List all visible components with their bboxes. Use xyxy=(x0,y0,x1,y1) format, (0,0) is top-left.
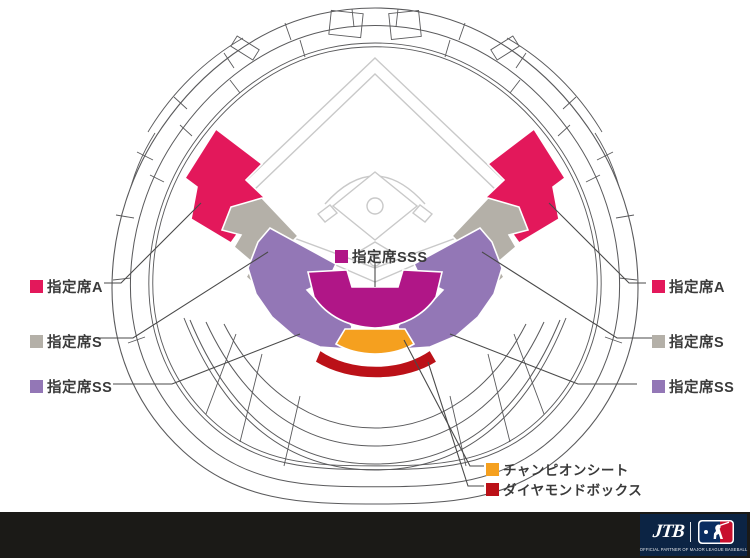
legend-label: 指定席SSS xyxy=(352,246,428,267)
logo-separator xyxy=(690,522,691,542)
legend-swatch-s xyxy=(30,335,43,348)
legend-label: 指定席S xyxy=(669,331,724,352)
legend-swatch-s xyxy=(652,335,665,348)
legend-label: 指定席SS xyxy=(47,376,112,397)
legend-item-shiteiseki-s-left: 指定席S xyxy=(30,331,102,352)
legend-label: 指定席S xyxy=(47,331,102,352)
legend-swatch-diamond xyxy=(486,483,499,496)
legend-item-shiteiseki-a-right: 指定席A xyxy=(652,276,725,297)
legend-swatch-ss xyxy=(652,380,665,393)
legend-item-champion-seat: チャンピオンシート xyxy=(486,459,629,479)
legend-label: 指定席A xyxy=(669,276,725,297)
legend-label: チャンピオンシート xyxy=(503,459,629,479)
legend-swatch-champion xyxy=(486,463,499,476)
mlb-logo xyxy=(698,520,734,544)
mlb-tagline: OFFICIAL PARTNER OF MAJOR LEAGUE BASEBAL… xyxy=(640,547,748,552)
legend-label: ダイヤモンドボックス xyxy=(503,479,642,499)
legend-label: 指定席A xyxy=(47,276,103,297)
legend-swatch-ss xyxy=(30,380,43,393)
legend-item-shiteiseki-sss: 指定席SSS xyxy=(335,246,428,267)
logo-row: JTB xyxy=(653,520,735,544)
legend-item-diamond-box: ダイヤモンドボックス xyxy=(486,479,642,499)
jtb-logo: JTB xyxy=(652,522,685,541)
legend-label: 指定席SS xyxy=(669,376,734,397)
footer-bar: JTB OFFICIAL PARTNER OF MAJOR LEAGUE BAS… xyxy=(0,512,750,558)
legend-swatch-sss xyxy=(335,250,348,263)
legend-swatch-a xyxy=(652,280,665,293)
section-champion-seat xyxy=(336,329,414,354)
legend-item-shiteiseki-s-right: 指定席S xyxy=(652,331,724,352)
pitcher-mound xyxy=(367,198,383,214)
legend-item-shiteiseki-ss-right: 指定席SS xyxy=(652,376,734,397)
sponsor-logo-panel: JTB OFFICIAL PARTNER OF MAJOR LEAGUE BAS… xyxy=(640,514,747,556)
seating-map-page: 指定席A 指定席S 指定席SS 指定席A 指定席S 指定席SS 指定席SSS チ… xyxy=(0,0,750,558)
legend-item-shiteiseki-a-left: 指定席A xyxy=(30,276,103,297)
legend-item-shiteiseki-ss-left: 指定席SS xyxy=(30,376,112,397)
legend-swatch-a xyxy=(30,280,43,293)
